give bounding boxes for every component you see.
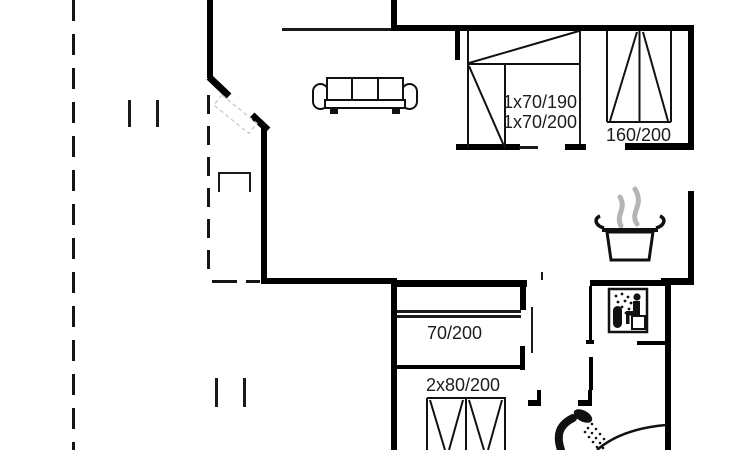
double-bed-label: 160/200 <box>606 125 671 145</box>
entrance-door <box>209 77 268 133</box>
roof-overhang-boundary <box>74 0 261 450</box>
floor-plan-canvas: 1x70/190 1x70/200 160/200 70/200 2x80/20… <box>0 0 730 450</box>
double-bed-2x80 <box>427 398 506 450</box>
bunk-bed-label-line1: 1x70/190 <box>503 92 577 112</box>
sauna-icon <box>609 289 647 332</box>
entrance-door-leaf <box>214 95 257 133</box>
double-bed2-label: 2x80/200 <box>426 375 500 395</box>
bunk-bed-label: 1x70/190 1x70/200 <box>503 92 577 132</box>
bunk-bed-label-line2: 1x70/200 <box>503 112 577 132</box>
cooking-pot-icon <box>596 189 664 260</box>
double-bed-160 <box>607 31 671 122</box>
single-bed-label: 70/200 <box>427 323 482 343</box>
steam-icon <box>619 189 638 226</box>
sofa-icon <box>313 78 417 113</box>
floorplan-linework <box>0 0 730 450</box>
shower-icon <box>559 406 606 450</box>
door-swing-arc <box>597 425 666 450</box>
